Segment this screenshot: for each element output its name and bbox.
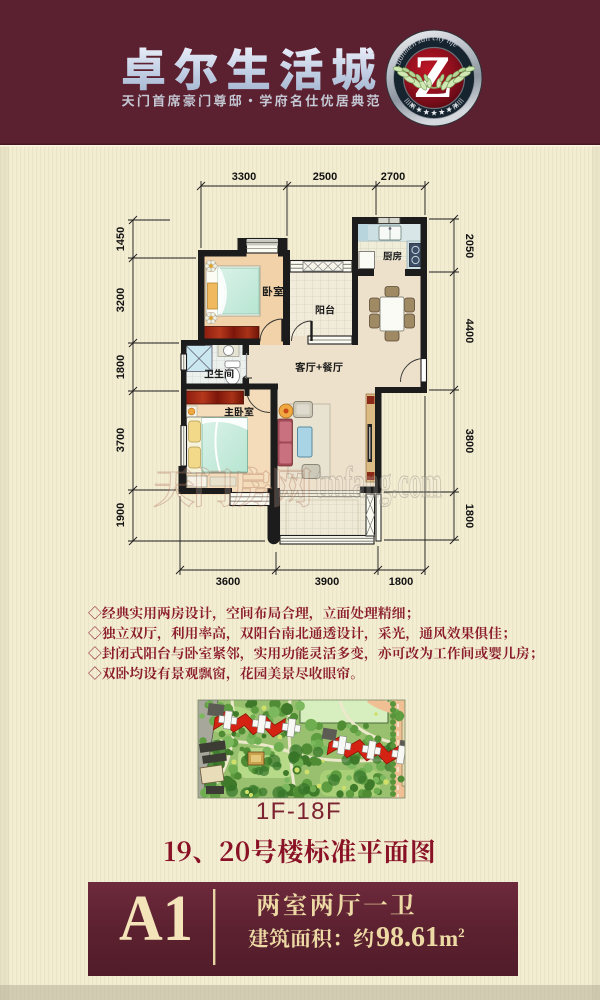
svg-text:4400: 4400 xyxy=(463,319,475,343)
svg-text:1800: 1800 xyxy=(463,504,475,528)
svg-text:3600: 3600 xyxy=(216,576,240,588)
svg-text:2500: 2500 xyxy=(313,171,337,183)
svg-text:1450: 1450 xyxy=(115,227,127,251)
svg-text:3300: 3300 xyxy=(232,171,256,183)
svg-text:1800: 1800 xyxy=(389,576,413,588)
svg-text:3700: 3700 xyxy=(115,428,127,452)
svg-text:2050: 2050 xyxy=(463,234,475,258)
svg-text:1F-18F: 1F-18F xyxy=(256,798,342,825)
svg-text:3900: 3900 xyxy=(315,576,339,588)
svg-text:1800: 1800 xyxy=(115,355,127,379)
svg-text:98.61m2: 98.61m2 xyxy=(376,922,465,953)
svg-text:2700: 2700 xyxy=(381,171,405,183)
svg-text:tmfang.com: tmfang.com xyxy=(315,458,442,507)
svg-text:3800: 3800 xyxy=(463,429,475,453)
svg-text:A1: A1 xyxy=(119,882,193,955)
svg-text:1900: 1900 xyxy=(115,503,127,527)
svg-text:3200: 3200 xyxy=(115,288,127,312)
